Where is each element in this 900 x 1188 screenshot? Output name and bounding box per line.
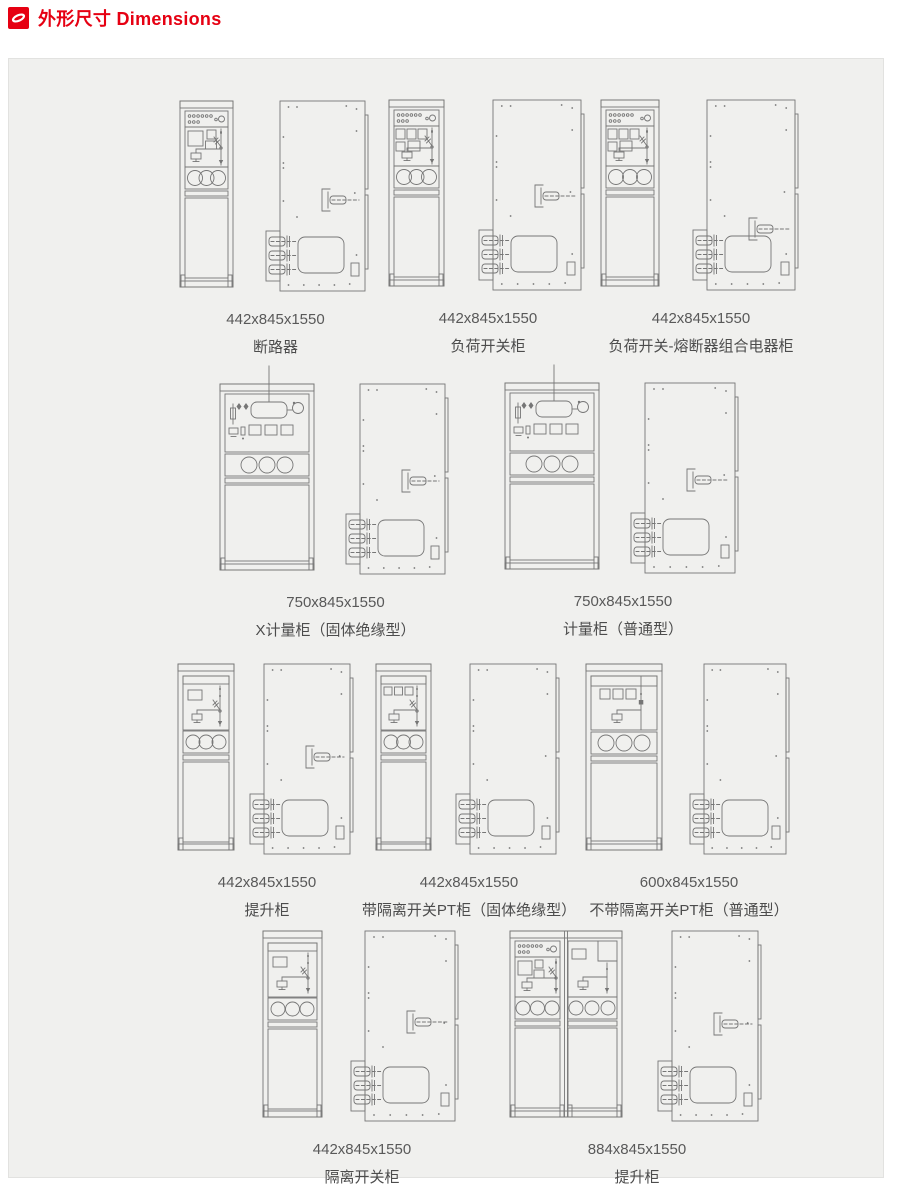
cabinet-drawing [218, 380, 453, 580]
front-view-drawing [178, 97, 235, 297]
cabinet-unit-breaker: 442x845x1550 断路器 [178, 97, 373, 297]
front-view-drawing [599, 96, 661, 296]
dimension-label: 750x845x1550 [176, 594, 496, 611]
cabinet-drawing [503, 379, 743, 579]
side-view-drawing [656, 927, 766, 1127]
cabinet-unit-lifting-2: 884x845x1550 提升柜 [508, 927, 766, 1127]
cabinet-unit-isolating-switch: 442x845x1550 隔离开关柜 [261, 927, 463, 1127]
front-view-drawing [584, 660, 664, 860]
cabinet-drawing [508, 927, 766, 1127]
front-view-drawing [503, 379, 601, 579]
side-view-drawing [688, 660, 794, 860]
cabinet-unit-load-switch: 442x845x1550 负荷开关柜 [387, 96, 589, 296]
front-view-drawing [176, 660, 236, 860]
cabinet-unit-metering-solid: 750x845x1550 X计量柜（固体绝缘型） [218, 380, 453, 580]
cabinet-unit-pt-without-isolator: 600x845x1550 不带隔离开关PT柜（普通型） [584, 660, 794, 860]
section-header: 外形尺寸 Dimensions [8, 5, 222, 31]
cabinet-name-label: 隔离开关柜 [202, 1166, 522, 1187]
dimension-label: 750x845x1550 [463, 593, 783, 610]
cabinet-unit-pt-with-isolator: 442x845x1550 带隔离开关PT柜（固体绝缘型） [374, 660, 564, 860]
front-view-drawing [508, 927, 624, 1127]
cabinet-name-label: X计量柜（固体绝缘型） [176, 619, 496, 640]
brand-icon [8, 7, 29, 29]
cabinet-drawing [387, 96, 589, 296]
side-view-drawing [264, 97, 373, 297]
cabinet-unit-lifting-1: 442x845x1550 提升柜 [176, 660, 358, 860]
dimension-label: 884x845x1550 [477, 1141, 797, 1158]
cabinet-drawing [374, 660, 564, 860]
side-view-drawing [344, 380, 453, 580]
front-view-drawing [387, 96, 446, 296]
cabinet-drawing [178, 97, 373, 297]
dimension-label: 600x845x1550 [529, 874, 849, 891]
side-view-drawing [629, 379, 743, 579]
dimension-label: 442x845x1550 [541, 310, 861, 327]
front-view-drawing [374, 660, 433, 860]
dimension-label: 442x845x1550 [202, 1141, 522, 1158]
side-view-drawing [349, 927, 463, 1127]
cabinet-name-label: 计量柜（普通型） [463, 618, 783, 639]
side-view-drawing [454, 660, 564, 860]
cabinet-name-label: 提升柜 [477, 1166, 797, 1187]
side-view-drawing [477, 96, 589, 296]
cabinet-name-label: 不带隔离开关PT柜（普通型） [529, 899, 849, 920]
cabinet-name-label: 负荷开关-熔断器组合电器柜 [541, 335, 861, 356]
cabinet-drawing [261, 927, 463, 1127]
cabinet-drawing [176, 660, 358, 860]
front-view-drawing [261, 927, 324, 1127]
section-title: 外形尺寸 Dimensions [38, 5, 222, 31]
cabinet-unit-metering-normal: 750x845x1550 计量柜（普通型） [503, 379, 743, 579]
cabinet-unit-fuse-combination: 442x845x1550 负荷开关-熔断器组合电器柜 [599, 96, 803, 296]
cabinet-drawing [584, 660, 794, 860]
side-view-drawing [691, 96, 803, 296]
cabinet-drawing [599, 96, 803, 296]
front-view-drawing [218, 380, 316, 580]
dimensions-board: 442x845x1550 断路器 442x845x1550 负荷开关柜 442x… [8, 58, 884, 1178]
side-view-drawing [248, 660, 358, 860]
